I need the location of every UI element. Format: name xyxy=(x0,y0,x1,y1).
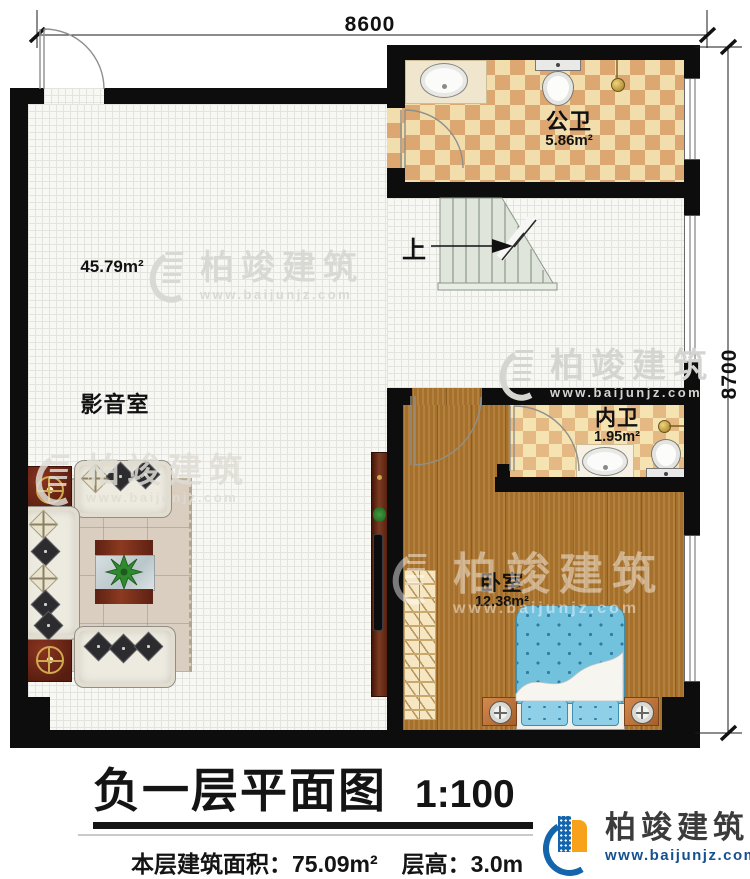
room-label-bedroom: 卧室 12.38m² xyxy=(458,573,546,610)
stairs-up-label: 上 xyxy=(402,230,426,265)
page-title: 负一层平面图 xyxy=(93,752,387,821)
cabinet-knob xyxy=(377,475,382,480)
shower-head-icon xyxy=(611,78,625,92)
wall xyxy=(684,45,700,78)
bed-pillow-right xyxy=(572,700,619,726)
coffee-table-top-edge xyxy=(95,540,153,555)
entrance-threshold xyxy=(44,88,104,104)
room-area: 5.86m² xyxy=(528,133,610,149)
logo-building-blue xyxy=(558,816,571,852)
wall xyxy=(10,697,50,740)
ceiling-light-icon xyxy=(36,476,64,504)
floor-area-label: 本层建筑面积： xyxy=(131,851,292,877)
ensuite-sink xyxy=(582,447,628,476)
wall xyxy=(10,88,44,104)
wall xyxy=(662,697,684,733)
room-area: 1.95m² xyxy=(574,430,660,445)
wall xyxy=(387,182,700,198)
dimension-right: 8700 xyxy=(718,343,742,405)
coffee-table-glass xyxy=(95,555,155,591)
wall xyxy=(495,477,684,492)
wall xyxy=(387,388,403,730)
room-label-media: 影音室 xyxy=(55,393,175,416)
room-label-ensuite-bath: 内卫 1.95m² xyxy=(574,408,660,445)
floor-area-value: 75.09m² xyxy=(292,851,378,877)
room-label-public-bath: 公卫 5.86m² xyxy=(528,110,610,149)
wall xyxy=(387,60,405,108)
brand-name: 柏竣建筑 xyxy=(605,812,750,843)
room-area: 12.38m² xyxy=(458,595,546,610)
wall xyxy=(387,388,412,405)
table-lamp-icon xyxy=(489,701,512,724)
plant-icon xyxy=(373,507,386,522)
brand-logo: 柏竣建筑 www.baijunjz.com xyxy=(543,812,750,868)
window xyxy=(684,535,700,682)
room-area: 45.79m² xyxy=(62,258,162,276)
table-lamp-icon xyxy=(631,701,654,724)
wall xyxy=(684,158,700,215)
tv-screen xyxy=(374,535,382,630)
floor-info: 本层建筑面积：75.09m²层高：3.0m xyxy=(131,845,523,879)
floor-height-value: 3.0m xyxy=(471,851,523,877)
public-toilet-tank xyxy=(535,59,581,71)
bedroom-door-threshold xyxy=(412,388,482,405)
wall xyxy=(497,464,510,477)
nightstand-right xyxy=(624,697,659,726)
public-bath-sink xyxy=(420,63,468,98)
wall xyxy=(10,730,700,748)
logo-building-orange xyxy=(572,820,587,852)
room-name: 内卫 xyxy=(574,408,660,430)
wall xyxy=(684,360,700,535)
bed-duvet xyxy=(516,605,625,704)
title-underline-thin xyxy=(78,834,533,836)
brand-url: www.baijunjz.com xyxy=(605,847,750,864)
side-table-bottom xyxy=(26,636,72,682)
scale-label: 1:100 xyxy=(415,773,515,817)
window xyxy=(684,215,700,362)
brand-logo-icon xyxy=(543,812,597,868)
wall xyxy=(10,88,28,748)
wall xyxy=(104,88,387,104)
ceiling-light-icon xyxy=(36,646,64,674)
room-label-media-area: 45.79m² xyxy=(62,258,162,276)
public-bath-door-threshold xyxy=(387,108,405,170)
floor-plan-page: 8600 8700 上 45.79m² 影音室 公卫 5.86m² 内卫 1.9… xyxy=(0,0,750,879)
room-name: 公卫 xyxy=(528,110,610,133)
bed-pillow-left xyxy=(521,700,568,726)
title-block: 负一层平面图 1:100 xyxy=(93,752,515,821)
nightstand-left xyxy=(482,697,517,726)
ladder-rack xyxy=(404,570,436,720)
wall xyxy=(482,388,700,405)
room-name: 影音室 xyxy=(55,393,175,416)
wall xyxy=(387,45,700,60)
stair-hall-floor xyxy=(387,198,684,388)
coffee-table-bottom-edge xyxy=(95,589,153,604)
floor-height-label: 层高： xyxy=(402,851,471,877)
window xyxy=(684,78,700,160)
room-name: 卧室 xyxy=(458,573,546,595)
title-underline xyxy=(93,822,533,829)
dimension-top: 8600 xyxy=(335,13,405,37)
